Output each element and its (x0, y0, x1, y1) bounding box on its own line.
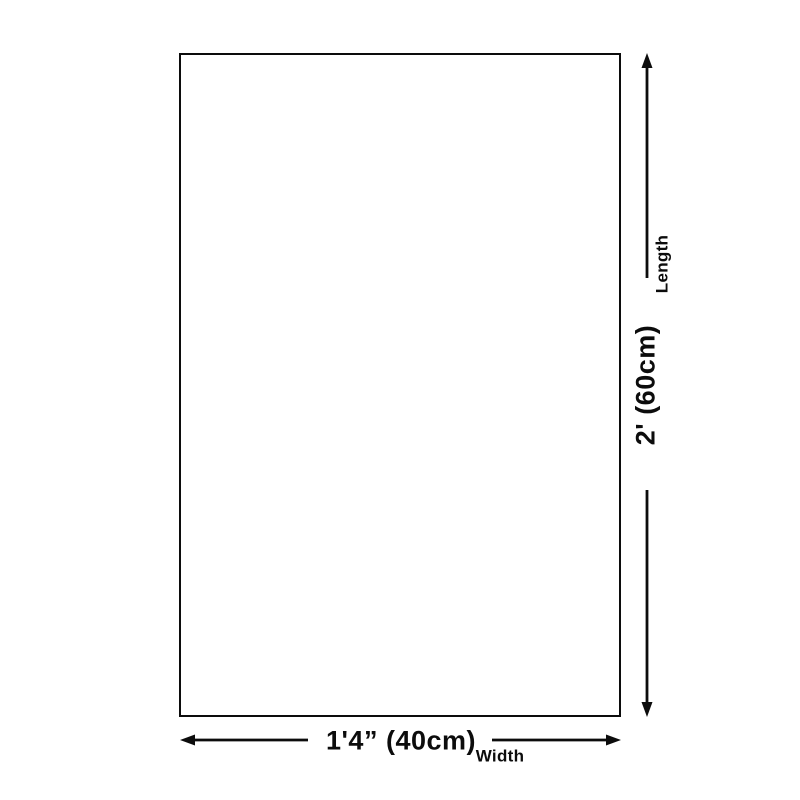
length-label: Length (654, 235, 671, 293)
width-value: 1'4” (40cm) (326, 728, 476, 755)
arrow-up-icon (642, 53, 653, 68)
dimension-diagram: 2' (60cm) Length 1'4” (40cm) Width (0, 0, 800, 800)
arrow-down-icon (642, 702, 653, 717)
arrow-right-icon (606, 735, 621, 746)
arrow-left-icon (180, 735, 195, 746)
dimension-arrows-layer (0, 0, 800, 800)
length-value: 2' (60cm) (633, 325, 660, 445)
width-label: Width (476, 748, 525, 765)
